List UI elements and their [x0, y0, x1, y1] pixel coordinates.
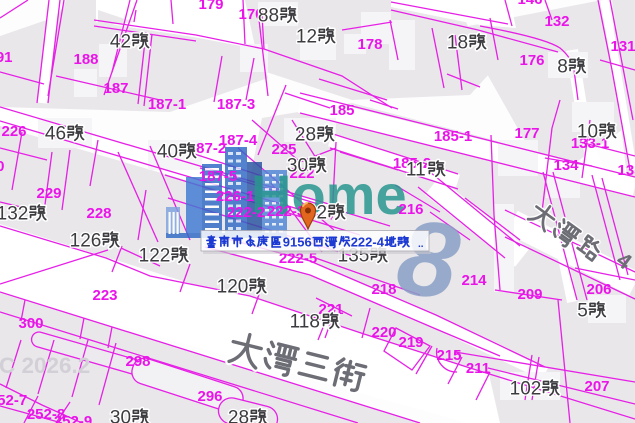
svg-text:40: 40 — [157, 142, 178, 163]
svg-text:206: 206 — [586, 281, 611, 298]
svg-text:185-1: 185-1 — [434, 128, 472, 145]
svg-text:132: 132 — [0, 204, 28, 225]
svg-text:188: 188 — [73, 51, 98, 68]
svg-text:30: 30 — [110, 408, 131, 423]
svg-text:..: .. — [418, 239, 424, 250]
svg-text:46: 46 — [45, 124, 66, 145]
svg-text:211: 211 — [466, 360, 490, 377]
svg-text:9156: 9156 — [283, 235, 312, 250]
svg-text:207: 207 — [584, 378, 609, 395]
svg-text:118: 118 — [290, 312, 320, 333]
svg-text:216: 216 — [398, 201, 423, 218]
svg-text:88: 88 — [258, 6, 279, 27]
svg-text:191: 191 — [0, 49, 13, 66]
svg-text:187-5: 187-5 — [199, 168, 237, 185]
svg-text:219: 219 — [398, 334, 423, 351]
svg-text:132: 132 — [544, 13, 569, 30]
svg-text:218: 218 — [371, 281, 396, 298]
svg-text:223: 223 — [92, 287, 117, 304]
svg-text:230: 230 — [0, 158, 5, 175]
svg-text:120: 120 — [217, 277, 249, 298]
svg-text:296: 296 — [197, 388, 222, 405]
svg-text:185: 185 — [329, 102, 354, 119]
svg-text:220: 220 — [371, 324, 396, 341]
svg-text:176: 176 — [519, 52, 544, 69]
svg-text:11: 11 — [406, 160, 426, 181]
svg-text:146: 146 — [517, 0, 542, 8]
svg-text:134: 134 — [553, 157, 579, 174]
svg-text:228: 228 — [86, 205, 111, 222]
svg-text:222-4: 222-4 — [351, 235, 385, 250]
svg-text:300: 300 — [18, 315, 43, 332]
svg-text:131: 131 — [610, 38, 635, 55]
svg-text:252-7: 252-7 — [0, 392, 27, 409]
svg-text:30: 30 — [287, 156, 308, 177]
svg-text:28: 28 — [295, 125, 316, 146]
svg-text:209: 209 — [517, 286, 542, 303]
svg-text:5: 5 — [577, 301, 588, 322]
svg-text:122: 122 — [139, 246, 171, 267]
svg-text:215: 215 — [436, 347, 461, 364]
svg-text:SC 2026.2: SC 2026.2 — [0, 353, 90, 378]
svg-text:179: 179 — [198, 0, 223, 13]
svg-text:102: 102 — [510, 379, 542, 400]
svg-text:42: 42 — [110, 32, 131, 53]
svg-text:187-4: 187-4 — [219, 132, 258, 149]
svg-text:222-3: 222-3 — [267, 203, 305, 220]
svg-text:135: 135 — [617, 162, 635, 179]
svg-text:226-1: 226-1 — [216, 188, 254, 205]
svg-text:298: 298 — [125, 353, 150, 370]
svg-text:12: 12 — [296, 27, 317, 48]
svg-text:229: 229 — [36, 185, 61, 202]
svg-text:214: 214 — [461, 272, 487, 289]
svg-text:187-1: 187-1 — [148, 96, 186, 113]
svg-text:187-3: 187-3 — [217, 96, 255, 113]
svg-text:18: 18 — [447, 33, 468, 54]
svg-text:177: 177 — [514, 125, 539, 142]
svg-text:222-2: 222-2 — [227, 204, 265, 221]
svg-text:8: 8 — [557, 57, 568, 78]
svg-text:252-9: 252-9 — [54, 413, 92, 423]
svg-text:187: 187 — [103, 80, 128, 97]
svg-text:10: 10 — [577, 122, 598, 143]
svg-text:178: 178 — [357, 36, 382, 53]
svg-text:126: 126 — [70, 231, 102, 252]
svg-text:28: 28 — [228, 408, 249, 423]
svg-text:226: 226 — [1, 123, 26, 140]
